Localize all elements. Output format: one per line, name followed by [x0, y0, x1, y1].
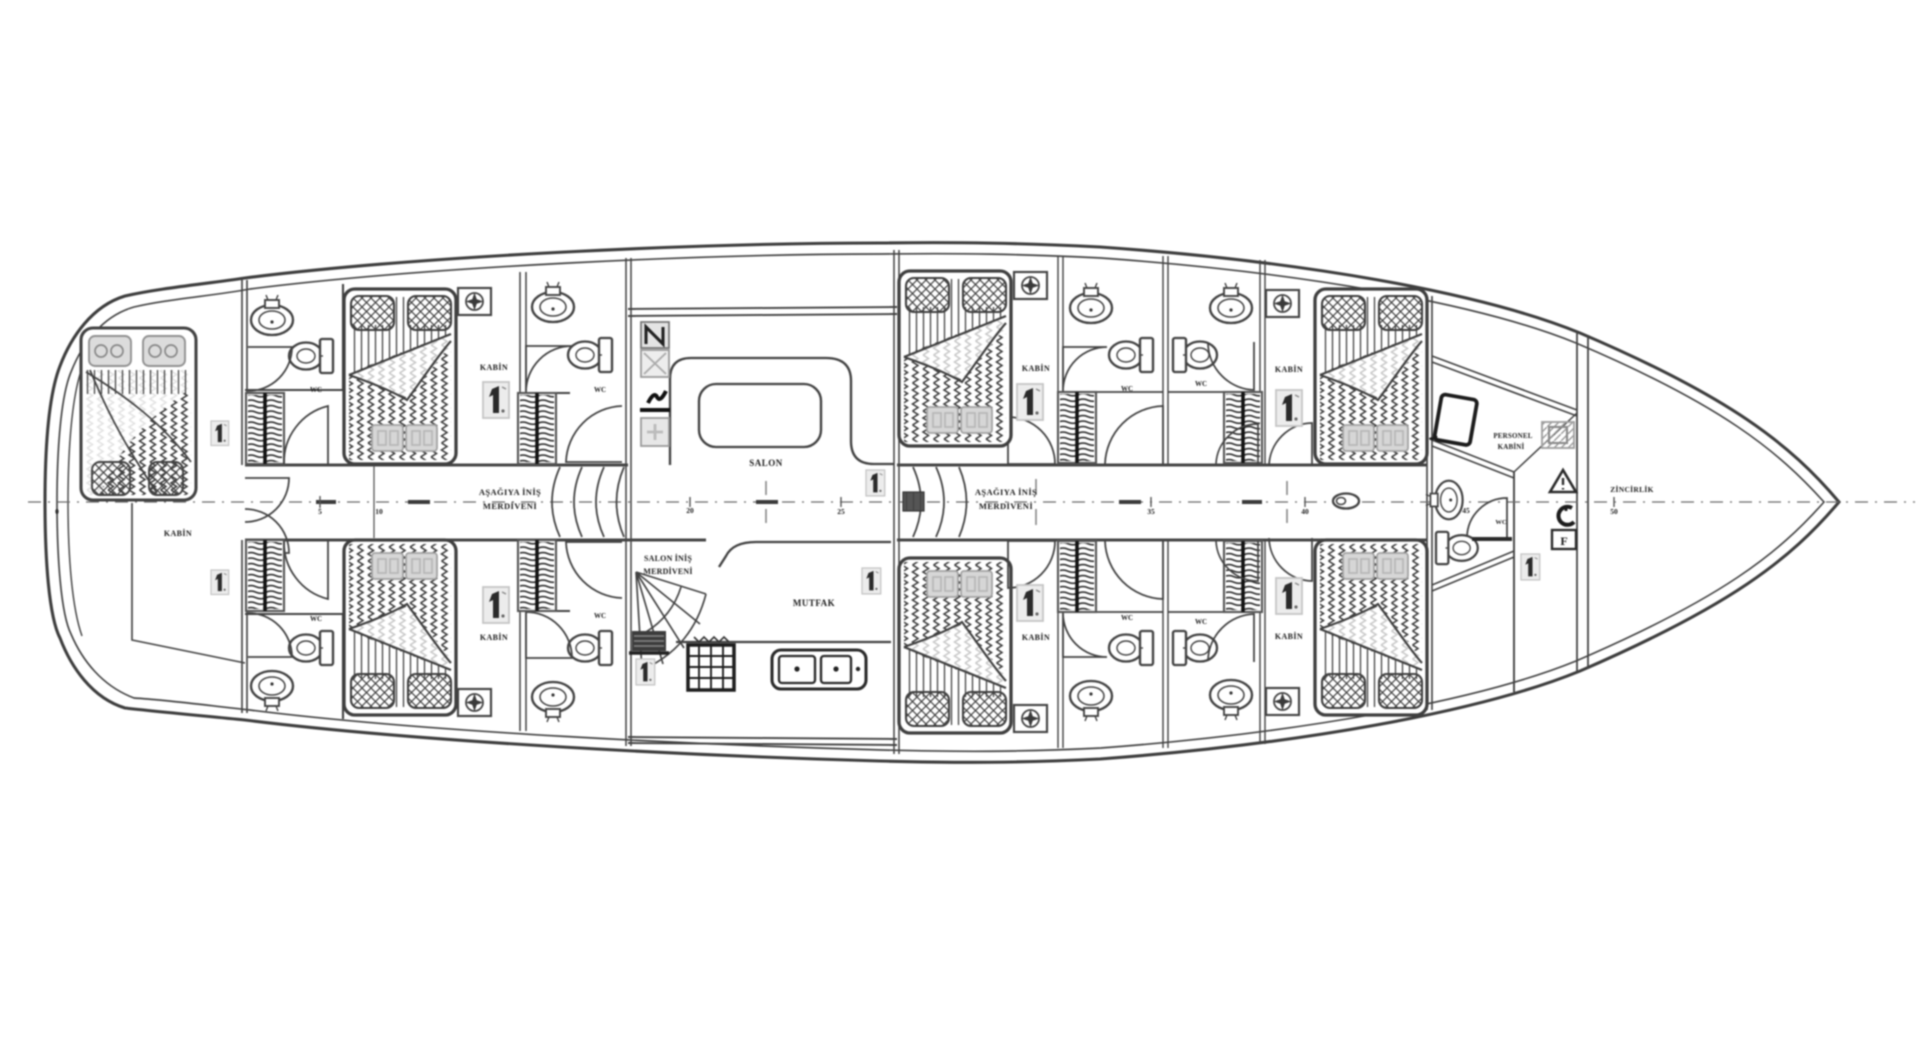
- svg-text:20: 20: [686, 506, 694, 515]
- svg-text:40: 40: [1301, 507, 1309, 516]
- svg-text:WC: WC: [310, 386, 322, 394]
- svg-text:WC: WC: [594, 612, 606, 620]
- svg-text:AŞAĞIYA İNİŞ: AŞAĞIYA İNİŞ: [975, 487, 1037, 497]
- svg-text:WC: WC: [1195, 380, 1207, 388]
- svg-text:WC: WC: [1121, 614, 1133, 622]
- svg-text:WC: WC: [1495, 519, 1507, 526]
- svg-text:KABİN: KABİN: [1022, 632, 1050, 642]
- svg-text:KABİN: KABİN: [480, 632, 508, 642]
- svg-text:45: 45: [1462, 506, 1470, 515]
- svg-text:WC: WC: [594, 386, 606, 394]
- svg-text:10: 10: [375, 507, 383, 516]
- svg-text:MERDİVENİ: MERDİVENİ: [483, 501, 537, 511]
- svg-text:WC: WC: [310, 615, 322, 623]
- svg-text:0: 0: [55, 507, 59, 516]
- svg-text:SALON: SALON: [749, 458, 783, 468]
- svg-text:WC: WC: [1195, 618, 1207, 626]
- svg-text:MUTFAK: MUTFAK: [793, 598, 835, 608]
- svg-text:KABİN: KABİN: [480, 362, 508, 372]
- svg-text:F: F: [1560, 534, 1567, 548]
- svg-text:5: 5: [318, 507, 322, 516]
- svg-text:AŞAĞIYA İNİŞ: AŞAĞIYA İNİŞ: [479, 487, 541, 497]
- svg-text:ZİNCİRLİK: ZİNCİRLİK: [1610, 484, 1654, 494]
- svg-text:MERDİVENİ: MERDİVENİ: [643, 566, 692, 576]
- svg-text:KABİN: KABİN: [1275, 631, 1303, 641]
- svg-text:SALON İNİŞ: SALON İNİŞ: [644, 553, 692, 563]
- svg-text:KABİN: KABİN: [164, 528, 192, 538]
- svg-text:50: 50: [1610, 507, 1618, 516]
- svg-text:KABİNİ: KABİNİ: [1498, 443, 1525, 451]
- svg-text:35: 35: [1147, 507, 1155, 516]
- svg-text:MERDİVENİ: MERDİVENİ: [979, 501, 1033, 511]
- svg-text:25: 25: [837, 507, 845, 516]
- svg-text:KABİN: KABİN: [1022, 363, 1050, 373]
- svg-text:WC: WC: [1121, 385, 1133, 393]
- svg-text:PERSONEL: PERSONEL: [1493, 432, 1532, 440]
- svg-text:KABİN: KABİN: [1275, 364, 1303, 374]
